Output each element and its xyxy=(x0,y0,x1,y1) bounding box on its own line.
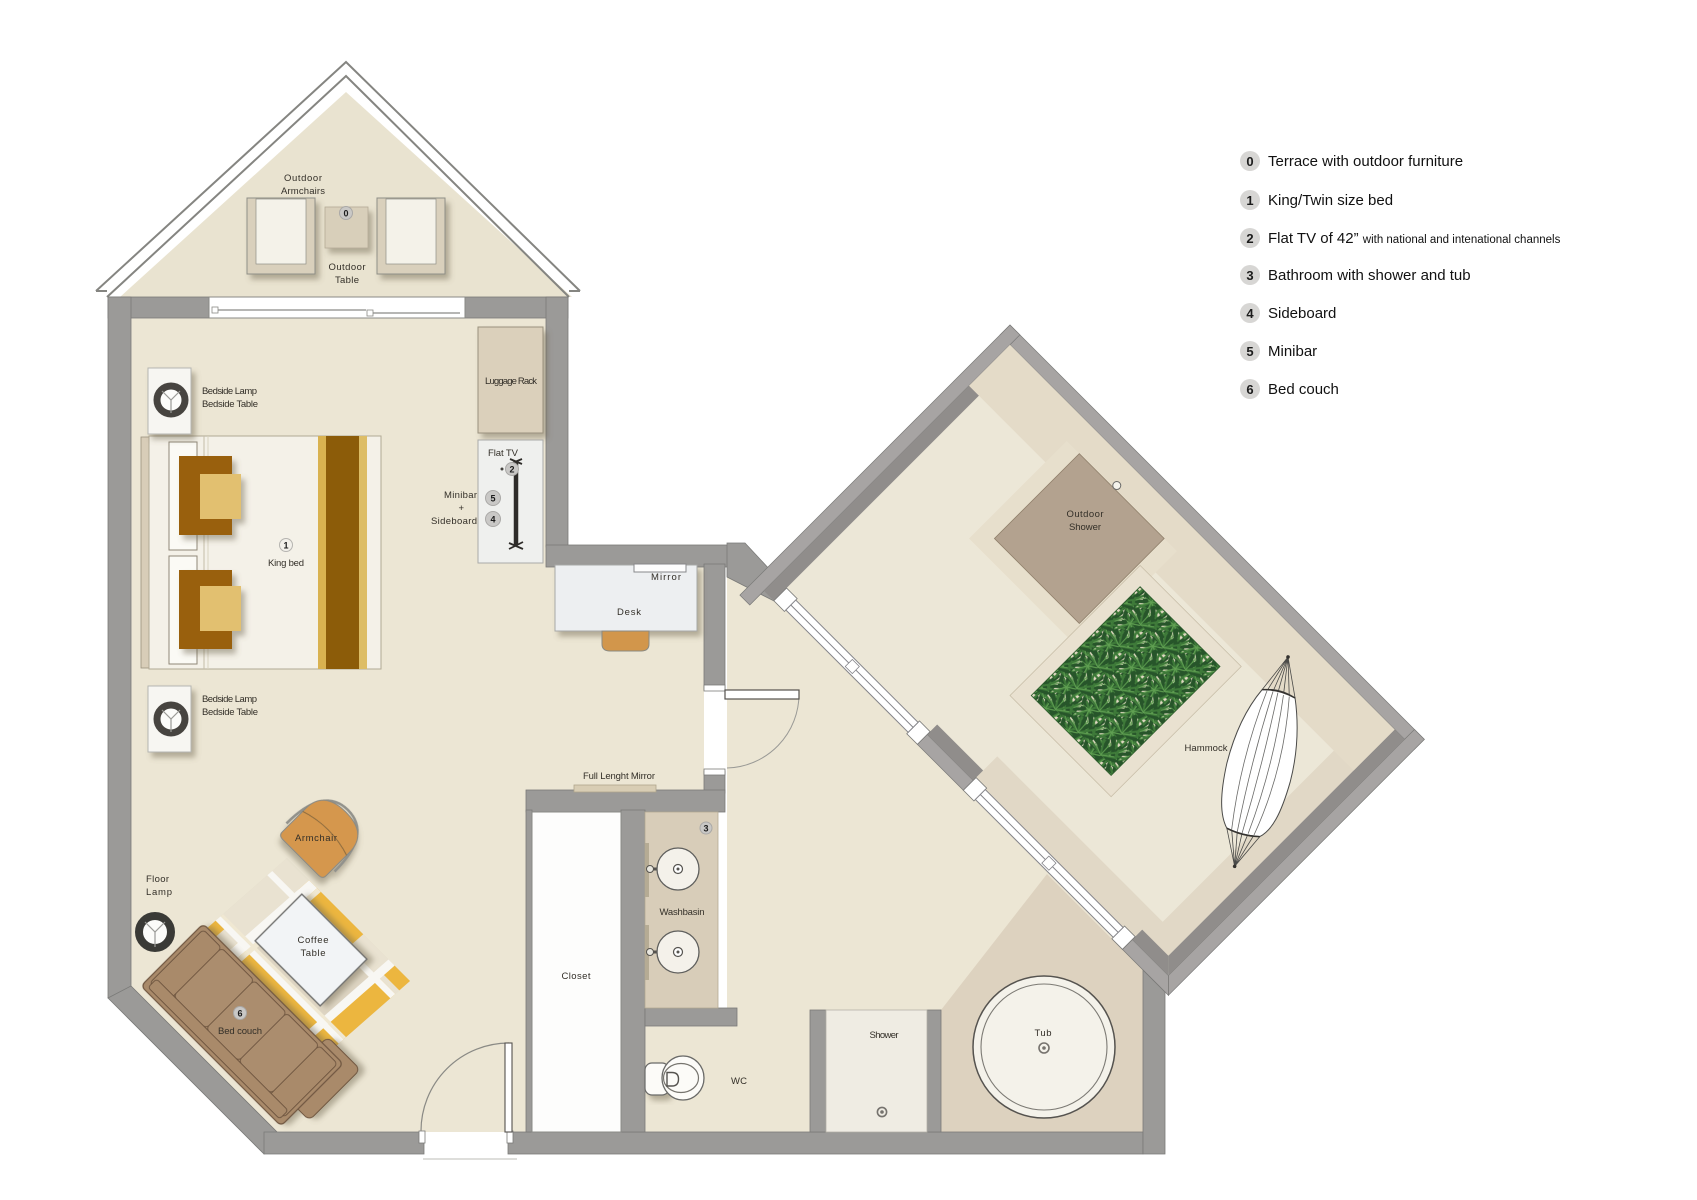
svg-text:4: 4 xyxy=(1246,306,1254,321)
svg-text:0: 0 xyxy=(343,209,348,219)
svg-text:Flat TV: Flat TV xyxy=(488,448,519,459)
svg-text:Bathroom with shower and tub: Bathroom with shower and tub xyxy=(1268,267,1471,284)
svg-text:Bed couch: Bed couch xyxy=(1268,381,1339,398)
svg-text:Luggage Rack: Luggage Rack xyxy=(485,376,537,387)
svg-text:Outdoor: Outdoor xyxy=(329,262,366,273)
svg-text:Tub: Tub xyxy=(1035,1028,1052,1039)
svg-text:Lamp: Lamp xyxy=(146,887,172,898)
svg-text:Outdoor: Outdoor xyxy=(284,173,322,184)
svg-text:2: 2 xyxy=(509,465,514,475)
svg-text:Table: Table xyxy=(335,275,359,286)
svg-text:1: 1 xyxy=(283,541,288,551)
svg-text:Hammock: Hammock xyxy=(1185,743,1228,754)
svg-text:WC: WC xyxy=(731,1076,747,1087)
svg-text:6: 6 xyxy=(237,1009,242,1019)
svg-text:Washbasin: Washbasin xyxy=(660,907,705,918)
svg-text:Closet: Closet xyxy=(562,971,591,982)
svg-text:Table: Table xyxy=(301,948,326,959)
svg-text:5: 5 xyxy=(1246,344,1253,359)
svg-text:Sideboard: Sideboard xyxy=(431,516,477,527)
svg-text:Bed couch: Bed couch xyxy=(218,1026,262,1037)
svg-text:King/Twin size bed: King/Twin size bed xyxy=(1268,192,1393,209)
svg-text:1: 1 xyxy=(1246,193,1253,208)
svg-text:Terrace with outdoor furniture: Terrace with outdoor furniture xyxy=(1268,153,1463,170)
svg-text:3: 3 xyxy=(1246,268,1253,283)
svg-text:Full Lenght Mirror: Full Lenght Mirror xyxy=(583,771,655,782)
svg-text:Mirror: Mirror xyxy=(651,572,681,583)
svg-text:2: 2 xyxy=(1246,231,1253,246)
svg-text:King bed: King bed xyxy=(268,558,304,569)
svg-text:Outdoor: Outdoor xyxy=(1067,509,1104,520)
svg-text:Armchairs: Armchairs xyxy=(281,186,325,197)
svg-text:Coffee: Coffee xyxy=(298,935,329,946)
svg-text:Bedside Lamp: Bedside Lamp xyxy=(202,386,257,397)
svg-text:3: 3 xyxy=(703,824,708,834)
svg-text:Shower: Shower xyxy=(870,1030,899,1041)
svg-text:5: 5 xyxy=(490,494,495,504)
svg-text:Sideboard: Sideboard xyxy=(1268,305,1336,322)
svg-text:0: 0 xyxy=(1246,154,1253,169)
svg-text:Minibar: Minibar xyxy=(444,490,477,501)
svg-text:4: 4 xyxy=(490,515,495,525)
svg-text:Bedside Table: Bedside Table xyxy=(202,399,258,410)
svg-text:Bedside Lamp: Bedside Lamp xyxy=(202,694,257,705)
svg-text:Minibar: Minibar xyxy=(1268,343,1317,360)
svg-text:Shower: Shower xyxy=(1069,522,1101,533)
svg-text:Bedside Table: Bedside Table xyxy=(202,707,258,718)
svg-text:Desk: Desk xyxy=(617,607,641,618)
svg-text:Floor: Floor xyxy=(146,874,169,885)
svg-text:6: 6 xyxy=(1246,382,1253,397)
svg-text:Armchair: Armchair xyxy=(295,833,337,844)
svg-text:+: + xyxy=(458,503,464,514)
